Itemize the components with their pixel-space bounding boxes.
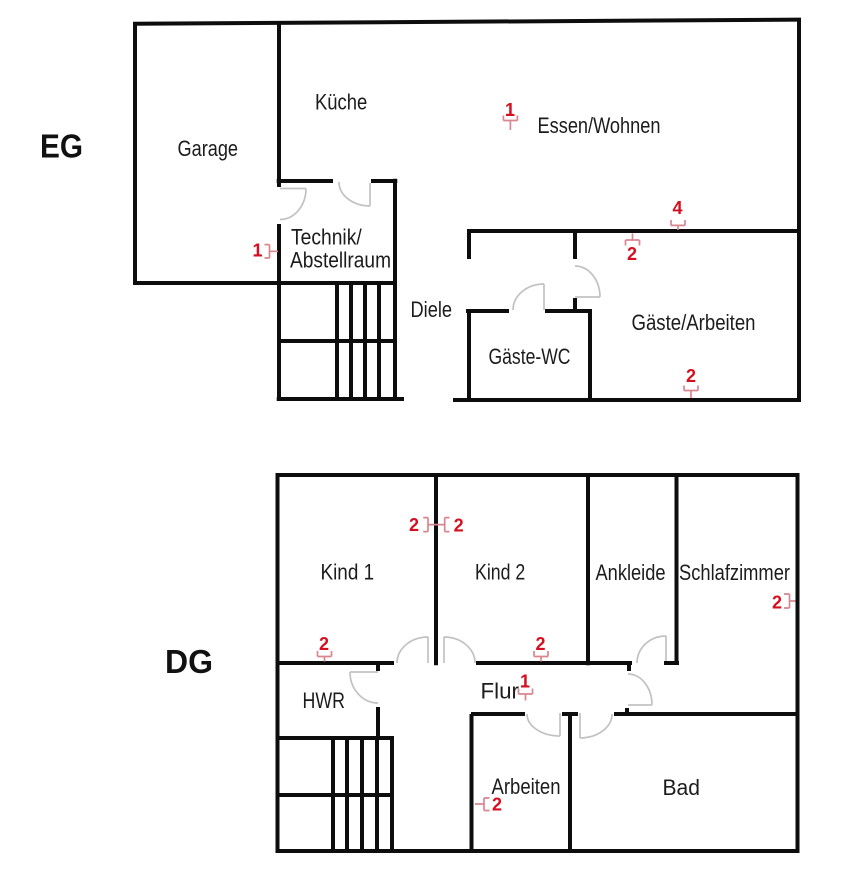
svg-text:Schlafzimmer: Schlafzimmer — [679, 560, 790, 585]
svg-text:2: 2 — [454, 516, 464, 536]
svg-text:2: 2 — [627, 244, 637, 264]
svg-text:1: 1 — [520, 672, 530, 692]
svg-text:Essen/Wohnen: Essen/Wohnen — [538, 113, 661, 138]
svg-text:Flur: Flur — [481, 679, 520, 704]
svg-text:4: 4 — [672, 198, 682, 218]
svg-text:DG: DG — [165, 643, 213, 680]
svg-text:Garage: Garage — [178, 136, 239, 161]
svg-text:Küche: Küche — [315, 90, 367, 115]
svg-text:HWR: HWR — [303, 688, 346, 713]
svg-text:Gäste-WC: Gäste-WC — [489, 344, 571, 369]
svg-text:1: 1 — [505, 100, 515, 120]
svg-text:Gäste/Arbeiten: Gäste/Arbeiten — [632, 310, 756, 335]
svg-text:2: 2 — [409, 515, 419, 535]
svg-text:2: 2 — [772, 593, 782, 613]
svg-text:Abstellraum: Abstellraum — [290, 248, 391, 273]
svg-text:EG: EG — [40, 128, 83, 165]
svg-text:2: 2 — [535, 634, 545, 654]
svg-text:1: 1 — [252, 241, 262, 261]
svg-text:2: 2 — [319, 634, 329, 654]
svg-text:Kind 2: Kind 2 — [475, 560, 525, 585]
svg-text:Diele: Diele — [411, 297, 453, 322]
svg-text:2: 2 — [686, 366, 696, 386]
svg-text:2: 2 — [492, 795, 502, 815]
svg-text:Kind 1: Kind 1 — [321, 560, 375, 585]
svg-text:Ankleide: Ankleide — [596, 560, 666, 585]
svg-text:Bad: Bad — [663, 775, 701, 800]
svg-text:Technik/: Technik/ — [291, 225, 362, 250]
